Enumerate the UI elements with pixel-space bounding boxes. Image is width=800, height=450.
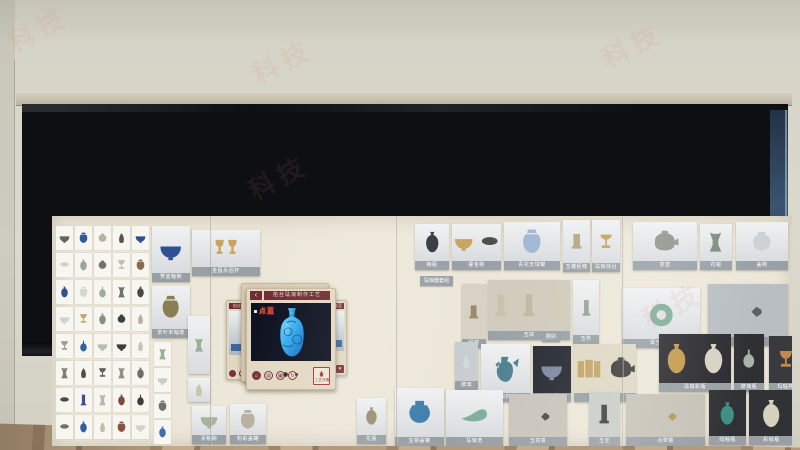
artifact-photo bbox=[592, 220, 620, 263]
artifact-caption: 青花天球罐 bbox=[504, 261, 560, 270]
artifact-tile[interactable] bbox=[113, 334, 130, 358]
artifact-card[interactable]: 珐琅洗 bbox=[446, 390, 503, 446]
artifact-card[interactable]: 玻璃瓶 bbox=[734, 334, 764, 392]
artifact-tile[interactable] bbox=[113, 361, 130, 385]
artifact-photo bbox=[357, 398, 386, 435]
artifact-tile[interactable] bbox=[94, 307, 111, 331]
artifact-photo bbox=[192, 406, 226, 435]
artifact-photo bbox=[504, 222, 560, 261]
process-popup-window[interactable]: ‹ 掐丝珐琅制作工艺 bbox=[246, 288, 336, 390]
artifact-card[interactable]: 盖碗 bbox=[736, 222, 788, 270]
artifact-tile[interactable] bbox=[132, 361, 149, 385]
artifact-photo bbox=[152, 286, 190, 329]
artifact-photo bbox=[769, 336, 792, 383]
nav-circle-button[interactable] bbox=[229, 370, 236, 377]
artifact-tile[interactable] bbox=[56, 388, 73, 412]
artifact-caption: 绿釉瓶 bbox=[709, 436, 746, 445]
artifact-photo bbox=[488, 280, 570, 331]
artifact-photo bbox=[749, 390, 792, 436]
artifact-card[interactable]: 茶壶 bbox=[633, 222, 697, 270]
artifact-photo bbox=[659, 334, 731, 383]
artifact-photo bbox=[626, 394, 705, 437]
artifact-tile[interactable] bbox=[56, 415, 73, 439]
artifact-photo bbox=[574, 344, 636, 393]
artifact-tile[interactable] bbox=[94, 280, 111, 304]
artifact-card[interactable]: 青花天球罐 bbox=[504, 222, 560, 270]
artifact-photo bbox=[589, 392, 620, 437]
artifact-tile[interactable] bbox=[94, 253, 111, 277]
artifact-caption: 玉圭 bbox=[589, 437, 620, 446]
touch-screen-wall[interactable]: 霁蓝釉碗 茶叶末釉尊 金瓯永固杯 青釉碗 粉 bbox=[52, 216, 792, 446]
artifact-tile[interactable] bbox=[132, 388, 149, 412]
home-button[interactable]: ⌂ bbox=[252, 371, 261, 380]
artifact-tile[interactable] bbox=[56, 334, 73, 358]
artifact-tile[interactable] bbox=[154, 394, 171, 418]
artifact-card[interactable]: 绿釉瓶 bbox=[709, 390, 746, 445]
enamel-vase-image bbox=[271, 307, 313, 359]
artifact-photo bbox=[481, 344, 530, 393]
artifact-caption: 玉杵 bbox=[573, 335, 599, 344]
artifact-card[interactable]: 点翠簪 bbox=[626, 394, 705, 446]
artifact-photo bbox=[736, 222, 788, 261]
artifact-card[interactable]: 珐琅彩瓶 bbox=[659, 334, 731, 392]
artifact-tile[interactable] bbox=[56, 253, 73, 277]
artifact-card[interactable] bbox=[188, 316, 210, 374]
artifact-tile[interactable] bbox=[94, 388, 111, 412]
artifact-caption: 梅瓶 bbox=[415, 261, 449, 270]
featured-card[interactable]: 霁蓝釉碗 bbox=[152, 226, 190, 282]
artifact-tile[interactable] bbox=[94, 334, 111, 358]
artifact-tile[interactable] bbox=[154, 368, 171, 392]
artifact-photo bbox=[700, 224, 732, 261]
featured-card[interactable]: 茶叶末釉尊 bbox=[152, 286, 190, 338]
artifact-card[interactable]: 粉彩盖罐 bbox=[230, 404, 266, 444]
artifact-photo bbox=[563, 220, 590, 263]
artifact-photo bbox=[415, 224, 449, 261]
artifact-card[interactable]: 金瓯永固杯 bbox=[192, 230, 260, 276]
favorite-mini-button[interactable]: ♥ bbox=[336, 365, 344, 373]
list-button[interactable]: ▤ bbox=[264, 371, 273, 380]
artifact-tile[interactable] bbox=[56, 361, 73, 385]
artifact-tile[interactable] bbox=[113, 226, 130, 250]
detail-button-label: 工艺详情 bbox=[314, 378, 328, 382]
detail-button[interactable]: 工艺详情 bbox=[313, 367, 330, 385]
artifact-photo bbox=[152, 226, 190, 273]
artifact-tile[interactable] bbox=[75, 307, 92, 331]
artifact-photo bbox=[709, 390, 746, 436]
artifact-card[interactable]: 玉杵 bbox=[573, 280, 599, 344]
artifact-tile[interactable] bbox=[132, 307, 149, 331]
artifact-3d-viewer[interactable]: 点蓝 bbox=[251, 303, 331, 361]
artifact-caption: 珐琅洗 bbox=[446, 437, 503, 446]
artifact-tile-column bbox=[154, 342, 171, 444]
artifact-tile[interactable] bbox=[75, 388, 92, 412]
artifact-tile[interactable] bbox=[113, 307, 130, 331]
artifact-caption: 金瓯永固杯 bbox=[192, 267, 260, 276]
artifact-tile[interactable] bbox=[132, 415, 149, 439]
artifact-photo bbox=[533, 346, 571, 393]
artifact-photo bbox=[188, 378, 210, 402]
artifact-card[interactable]: 玻璃 bbox=[455, 342, 478, 390]
artifact-tile[interactable] bbox=[132, 253, 149, 277]
artifact-tile[interactable] bbox=[94, 361, 111, 385]
artifact-tile[interactable] bbox=[75, 361, 92, 385]
artifact-caption: 点翠簪 bbox=[626, 437, 705, 446]
artifact-card[interactable]: 玉雕经幢 bbox=[563, 220, 590, 272]
artifact-tile[interactable] bbox=[154, 342, 171, 366]
artifact-photo bbox=[573, 280, 599, 335]
artifact-photo bbox=[452, 224, 501, 261]
artifact-caption: 花觚 bbox=[700, 261, 732, 270]
artifact-caption: 珐琅烛台 bbox=[592, 263, 620, 272]
artifact-card[interactable]: 花瓶 bbox=[357, 398, 386, 444]
artifact-tile[interactable] bbox=[75, 334, 92, 358]
artifact-tile[interactable] bbox=[113, 253, 130, 277]
series-caption-chip: 珐琅器套组 bbox=[420, 276, 453, 286]
back-button[interactable]: ‹ bbox=[250, 291, 262, 300]
artifact-card[interactable]: 青釉碗 bbox=[192, 406, 226, 444]
artifact-photo bbox=[395, 388, 444, 437]
grid-button[interactable]: ▦ bbox=[276, 371, 285, 380]
artifact-photo bbox=[188, 316, 210, 374]
artifact-caption: 盖碗 bbox=[736, 261, 788, 270]
artifact-card[interactable]: 彩绘瓶 bbox=[749, 390, 792, 445]
artifact-photo bbox=[734, 334, 764, 383]
artifact-photo bbox=[446, 390, 503, 437]
artifact-tile[interactable] bbox=[56, 226, 73, 250]
process-step-label: 点蓝 bbox=[254, 306, 275, 316]
artifact-tile[interactable] bbox=[75, 253, 92, 277]
artifact-tile[interactable] bbox=[113, 280, 130, 304]
artifact-card[interactable]: 梅瓶 bbox=[415, 224, 449, 270]
artifact-tile[interactable] bbox=[132, 334, 149, 358]
screen-seam bbox=[210, 216, 212, 446]
artifact-caption: 霁蓝釉碗 bbox=[152, 273, 190, 282]
artifact-tile[interactable] bbox=[75, 226, 92, 250]
artifact-caption: 玻璃 bbox=[455, 381, 478, 390]
artifact-photo bbox=[633, 222, 697, 261]
artifact-tile[interactable] bbox=[113, 415, 130, 439]
artifact-tile[interactable] bbox=[113, 388, 130, 412]
artifact-card[interactable]: 经幢 bbox=[462, 284, 486, 348]
display-bezel-frame: 霁蓝釉碗 茶叶末釉尊 金瓯永固杯 青釉碗 粉 bbox=[22, 104, 788, 356]
artifact-caption: 花瓶 bbox=[357, 435, 386, 444]
artifact-card[interactable] bbox=[188, 378, 210, 402]
artifact-caption: 玉雕经幢 bbox=[563, 263, 590, 272]
artifact-tile[interactable] bbox=[75, 415, 92, 439]
artifact-tile[interactable] bbox=[132, 280, 149, 304]
watermark: 科技 bbox=[595, 13, 669, 76]
artifact-photo bbox=[708, 284, 788, 337]
artifact-caption: 玉如意 bbox=[509, 437, 567, 446]
artifact-card[interactable]: 玉圭 bbox=[589, 392, 620, 446]
artifact-tile[interactable] bbox=[75, 280, 92, 304]
screen-seam bbox=[396, 216, 398, 446]
artifact-tile[interactable] bbox=[132, 226, 149, 250]
artifact-photo bbox=[462, 284, 486, 339]
wall-corner-line bbox=[14, 60, 15, 426]
artifact-thumbnail-grid bbox=[56, 226, 149, 439]
artifact-tile[interactable] bbox=[56, 307, 73, 331]
artifact-caption: 粉彩盖罐 bbox=[230, 435, 266, 444]
artifact-card[interactable]: 玉琮 bbox=[488, 280, 570, 340]
artifact-card[interactable]: 珐琅烛台 bbox=[592, 220, 620, 272]
artifact-photo bbox=[192, 230, 260, 267]
artifact-tile[interactable] bbox=[94, 415, 111, 439]
artifact-caption-chip: 刚卯 bbox=[542, 332, 560, 342]
artifact-caption: 茶叶末釉尊 bbox=[152, 329, 190, 338]
screen-seam bbox=[622, 216, 624, 446]
artifact-caption: 青釉碗 bbox=[192, 435, 226, 444]
artifact-caption: 彩绘瓶 bbox=[749, 436, 792, 445]
museum-interactive-wall-photo: 科技 科技 科技 科技 科技 霁蓝釉碗 茶叶末釉尊 bbox=[0, 0, 800, 450]
refresh-button[interactable]: ↻ bbox=[288, 371, 297, 380]
popup-title: 掐丝珐琅制作工艺 bbox=[264, 291, 330, 300]
artifact-photo bbox=[622, 288, 700, 339]
artifact-tile[interactable] bbox=[56, 280, 73, 304]
artifact-photo bbox=[230, 404, 266, 435]
artifact-card[interactable]: 花觚 bbox=[700, 224, 732, 270]
artifact-card[interactable]: 玛瑙杯 bbox=[769, 336, 792, 392]
artifact-card[interactable]: 宝相盖罐 bbox=[395, 388, 444, 446]
artifact-photo bbox=[509, 394, 567, 437]
artifact-card[interactable]: 玉如意 bbox=[509, 394, 567, 446]
artifact-caption: 茶壶 bbox=[633, 261, 697, 270]
watermark: 科技 bbox=[245, 29, 319, 92]
artifact-caption: 鎏金碗 bbox=[452, 261, 501, 270]
artifact-tile[interactable] bbox=[154, 420, 171, 444]
artifact-caption: 宝相盖罐 bbox=[395, 437, 444, 446]
artifact-tile[interactable] bbox=[94, 226, 111, 250]
artifact-photo bbox=[455, 342, 478, 381]
artifact-card[interactable]: 鎏金碗 bbox=[452, 224, 501, 270]
left-wall-shade bbox=[0, 0, 15, 450]
